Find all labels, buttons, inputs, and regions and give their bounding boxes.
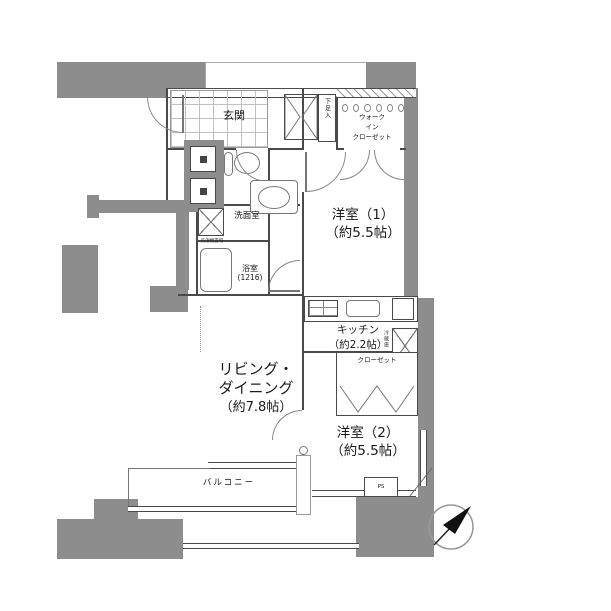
entrance-door-leaf bbox=[182, 95, 184, 133]
refrigerator-label: 冷蔵庫 bbox=[383, 330, 390, 348]
room1-area-label: （約5.5帖） bbox=[313, 224, 413, 242]
wall-bottom-right bbox=[356, 497, 434, 557]
bathroom-size-label: (1216) bbox=[232, 272, 268, 284]
kitchen-ps-box bbox=[392, 298, 414, 320]
void-recess bbox=[205, 62, 367, 89]
room1-door-leaf bbox=[305, 152, 307, 192]
living-name-label-1: リビング・ bbox=[206, 360, 306, 379]
balcony-north-line bbox=[128, 468, 210, 469]
wall-room1-west-b bbox=[302, 192, 304, 298]
wall-left-arm bbox=[92, 200, 184, 213]
shoe-cabinet-box: 下足入 bbox=[318, 94, 336, 142]
slop-sink-icon bbox=[299, 446, 308, 455]
bathtub-icon bbox=[200, 248, 232, 292]
washing-machine-space-icon bbox=[198, 208, 224, 236]
wall-annotation-mark bbox=[200, 306, 203, 352]
hall-living-door-leaf bbox=[268, 290, 300, 292]
room2-name-label: 洋室（2） bbox=[316, 424, 420, 442]
meter-box-upper bbox=[190, 146, 216, 172]
hall-living-door-arc bbox=[268, 260, 300, 292]
living-south-window bbox=[208, 462, 304, 469]
floor-plan: 玄関 下足入 洗濯機置場 洗面室 浴室 (1216) ウォーク イン クローゼッ… bbox=[0, 0, 611, 611]
toilet-door-arc bbox=[236, 150, 268, 182]
wic-door-arc-right bbox=[374, 150, 404, 180]
meter-box-glyph bbox=[200, 156, 207, 163]
washbasin-bowl-icon bbox=[258, 186, 290, 209]
washing-machine-label: 洗濯機置場 bbox=[197, 237, 227, 247]
meter-box-lower bbox=[190, 178, 216, 204]
room1-door-arc bbox=[306, 152, 346, 192]
washroom-label: 洗面室 bbox=[224, 210, 270, 222]
wall-hall-south-b bbox=[268, 148, 304, 150]
wall-bath-south bbox=[178, 294, 304, 296]
stove-icon bbox=[308, 300, 338, 317]
toilet-tank-icon bbox=[224, 152, 233, 176]
shoe-cabinet-label: 下足入 bbox=[323, 98, 332, 119]
pipe-space-label: PS bbox=[365, 478, 397, 496]
wall-left-foot bbox=[150, 286, 188, 312]
wall-right-upper bbox=[404, 88, 418, 300]
balcony-label: バルコニー bbox=[194, 476, 264, 490]
wall-left-arm-cap bbox=[87, 195, 99, 218]
folding-door-icon bbox=[339, 384, 415, 414]
shoe-cabinet-doors-icon bbox=[284, 94, 318, 140]
room2-closet-label: クローゼット bbox=[338, 355, 416, 366]
compass-icon bbox=[424, 500, 478, 554]
entrance-label: 玄関 bbox=[204, 108, 264, 124]
room2-area-label: （約5.5帖） bbox=[316, 442, 420, 460]
wall-bottom-left bbox=[57, 519, 183, 559]
wall-wic-west bbox=[336, 98, 338, 150]
wall-hallway-west bbox=[268, 148, 270, 296]
room1-name-label: 洋室（1） bbox=[313, 206, 413, 224]
balcony-front-wall bbox=[128, 506, 302, 512]
wall-left-column bbox=[176, 210, 189, 290]
balcony-side-strip bbox=[296, 455, 311, 515]
outer-boundary-line bbox=[183, 543, 359, 549]
meter-box-glyph bbox=[200, 188, 207, 195]
entrance-door-arc bbox=[147, 97, 183, 133]
pipe-space-box: PS bbox=[364, 477, 398, 497]
kitchen-sink-icon bbox=[346, 300, 380, 317]
wic-label-3: クローゼット bbox=[342, 132, 402, 142]
living-name-label-2: ダイニング bbox=[206, 379, 306, 398]
wall-far-left-block bbox=[62, 245, 98, 313]
wall-step-mark bbox=[408, 466, 434, 498]
meter-box-block bbox=[184, 140, 224, 212]
wic-label-1: ウォーク bbox=[342, 112, 402, 122]
wall-hatch bbox=[336, 89, 414, 97]
living-area-label: （約7.8帖） bbox=[206, 399, 306, 417]
wic-label-2: イン bbox=[342, 122, 402, 132]
